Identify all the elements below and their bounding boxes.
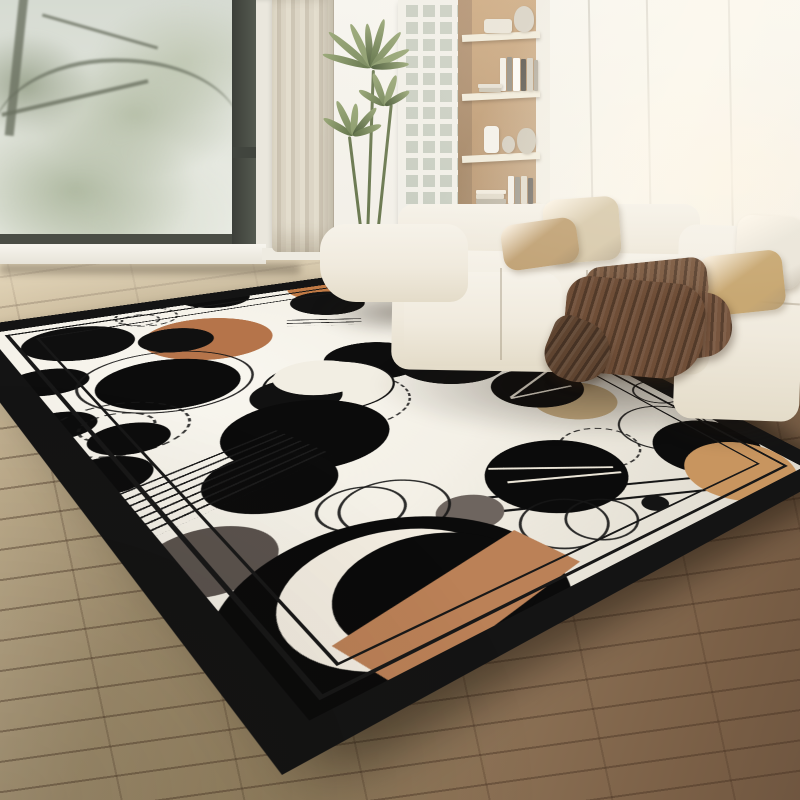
shelf-book <box>521 59 526 91</box>
shelf-pear-vase <box>517 128 536 154</box>
lattice-screen-panel <box>398 0 466 229</box>
shelf-cylinder-vase <box>484 126 499 153</box>
sofa-left-arm <box>320 224 468 302</box>
shelf-book <box>508 176 514 204</box>
shelf-book <box>507 57 512 91</box>
window <box>0 0 232 242</box>
shelf-book <box>528 178 533 204</box>
bookshelf-niche <box>458 0 550 218</box>
shelf-book <box>534 60 538 91</box>
shelf-ball-vase <box>502 136 515 153</box>
windowsill <box>0 244 266 264</box>
sofa-seat-seam <box>500 268 502 360</box>
shelf-book <box>521 176 527 204</box>
shelf-sphere-vase <box>514 6 534 32</box>
shelf-wood-side <box>458 0 472 218</box>
shelf-book <box>513 58 520 91</box>
window-frame-bottom-rail <box>0 234 233 244</box>
shelf-book <box>527 58 533 91</box>
shelf-book <box>515 177 520 204</box>
window-frame-right-bar <box>232 0 256 244</box>
shelf-box-vase <box>484 19 512 33</box>
living-room-photo <box>0 0 800 800</box>
windowsill-shadow <box>0 264 300 274</box>
curtain <box>272 0 334 252</box>
shelf-book-flat <box>479 88 501 92</box>
wall-panel-seam <box>728 0 734 250</box>
